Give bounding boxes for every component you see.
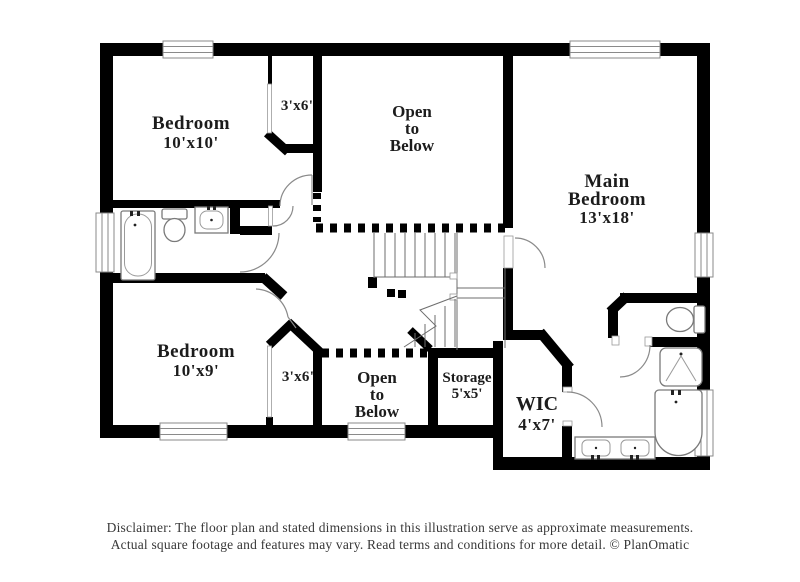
label-bedroom-top: Bedroom [152,113,230,134]
railing-dash-2 [387,289,395,297]
toilet-main-icon [667,306,706,333]
label-bedroom-bottom: Bedroom [157,341,235,362]
wall-mainbed-west-upper [503,56,513,228]
wall-diagonal-stair-corner [410,330,430,349]
wall-closet-bottom-stub [266,417,273,425]
door-toilet-nook [612,336,652,377]
window-main-bedroom-right [695,233,713,277]
label-storage: Storage [442,370,491,386]
wall-closet-bottom-east [313,348,322,425]
label-closet-top-dims: 3'x6' [281,98,313,114]
door-main-bedroom [504,236,545,268]
bathtub-icon [121,211,155,280]
disclaimer-line-1: Disclaimer: The floor plan and stated di… [107,520,694,535]
wall-diagonal-closet-bottom-right [288,322,320,352]
wall-openbelow-top-left [313,56,322,192]
label-main-bedroom-dims: 13'x18' [579,208,634,227]
stair-break-line [404,296,457,347]
door-closet-top [268,84,272,133]
door-closet-bottom [268,346,272,417]
wall-shower-north [650,337,710,347]
bathroom1-fixtures [121,206,228,280]
railings [316,193,505,353]
door-wic [563,387,602,427]
label-bedroom-bottom-dims: 10'x9' [173,361,219,380]
footer-disclaimer: Disclaimer: The floor plan and stated di… [107,520,694,552]
label-storage-dims: 5'x5' [452,386,483,402]
wall-linen-south [240,226,272,235]
label-closet-bottom-dims: 3'x6' [282,369,314,385]
label-bedroom-top-dims: 10'x10' [163,133,218,152]
railing-dash-3 [398,290,406,298]
disclaimer-line-2: Actual square footage and features may v… [111,537,690,552]
wall-step [493,341,503,470]
window-bedroom-bottom [160,423,227,440]
label-wic-dims: 4'x7' [518,415,555,434]
toilet-icon [162,209,187,242]
window-bath1-left [96,213,114,272]
wall-storage-west [428,348,438,425]
stair-newel-1 [450,273,457,279]
wall-diagonal-hall [263,277,284,296]
label-main-bedroom-2: Bedroom [568,189,646,210]
wall-diagonal-toilet-nook [610,296,627,312]
wall-diagonal-wic [540,332,570,368]
label-wic: WIC [516,393,558,415]
wall-storage-north [428,348,498,358]
bathtub-main-icon [655,390,702,456]
wall-wic-east-lower [562,426,572,457]
sink-icon [195,206,228,233]
door-linen-closet [269,206,294,226]
bathroom2-fixtures [575,306,705,460]
wall-diagonal-closet-top [267,133,288,152]
window-bedroom-top [163,41,213,58]
wall-closet-top-stub [268,56,272,85]
window-open-below-bottom [348,423,405,440]
door-bath1 [240,233,279,272]
label-open-below-bottom-3: Below [355,402,400,421]
window-main-bedroom-top [570,41,660,58]
shower-icon [660,348,702,386]
wall-toilet-nook-north [620,293,710,303]
floor-plan-page: Bedroom 10'x10' 3'x6' Open to Below Main… [0,0,800,582]
double-vanity-icon [575,437,655,460]
floor-plan-drawing: Bedroom 10'x10' 3'x6' Open to Below Main… [0,0,800,582]
wall-bath1-east [230,208,240,234]
label-open-below-top-3: Below [390,136,435,155]
railing-dash-1 [368,277,377,288]
door-bedroom-top [280,175,312,206]
